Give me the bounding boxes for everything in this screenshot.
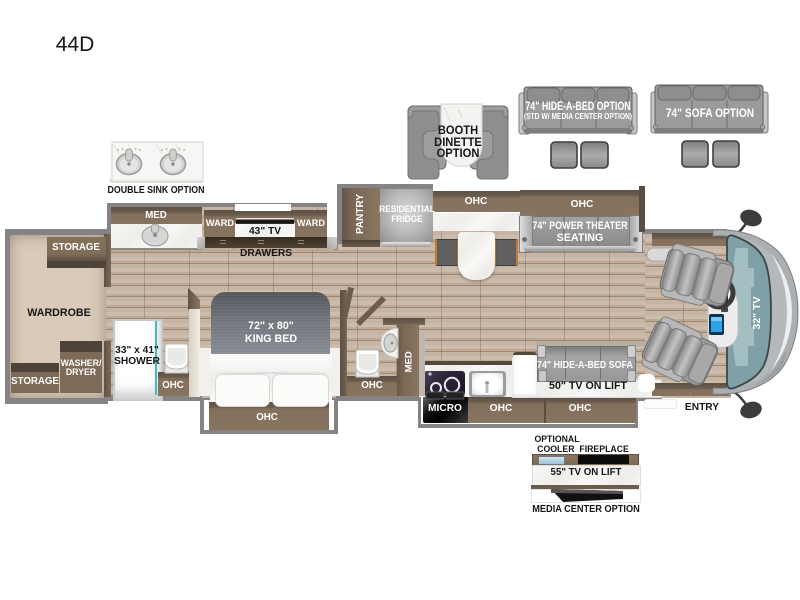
svg-text:32" TV: 32" TV	[751, 297, 763, 330]
